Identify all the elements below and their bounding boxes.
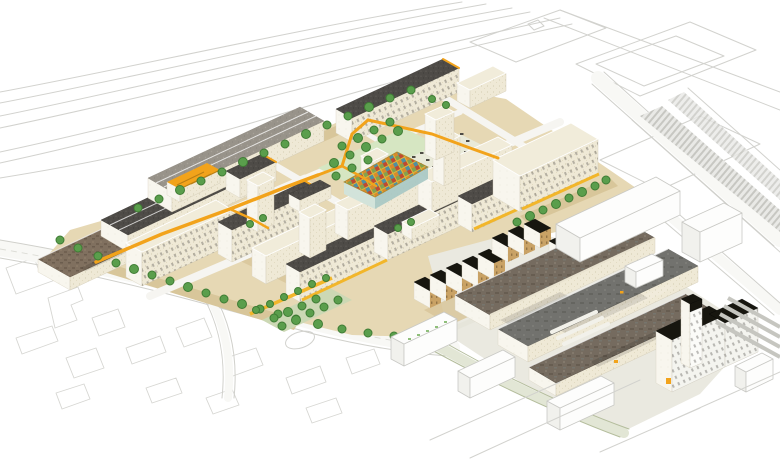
tree (408, 219, 415, 226)
ghost-building (682, 203, 742, 262)
tree (184, 283, 193, 292)
tree (346, 151, 354, 159)
tree (378, 135, 386, 143)
tree (309, 281, 316, 288)
tree (344, 112, 352, 120)
tree (513, 218, 521, 226)
tree (112, 259, 120, 267)
tree (365, 103, 374, 112)
tree (395, 225, 402, 232)
tree (306, 309, 314, 317)
tree (270, 314, 278, 322)
tree (176, 186, 185, 195)
tree (386, 94, 394, 102)
tree (281, 140, 289, 148)
tree (284, 308, 293, 317)
tree (74, 244, 82, 252)
tree (323, 275, 330, 282)
tree (197, 177, 205, 185)
tree (332, 172, 340, 180)
masterplan-illustration (0, 0, 780, 463)
tree (302, 130, 311, 139)
tree (407, 86, 415, 94)
tree (364, 156, 372, 164)
tree (323, 121, 331, 129)
tree (565, 194, 573, 202)
tree (429, 96, 436, 103)
tree (338, 142, 346, 150)
tree (202, 289, 210, 297)
tree (354, 134, 363, 143)
tree (278, 322, 286, 330)
tree (602, 176, 610, 184)
tree (130, 265, 139, 274)
tree (166, 277, 174, 285)
tree (364, 329, 372, 337)
tree (281, 294, 288, 301)
tree (552, 200, 561, 209)
tree (578, 188, 587, 197)
tree (394, 127, 403, 136)
tree (260, 215, 267, 222)
tree (298, 302, 306, 310)
tree (292, 316, 301, 325)
tree (260, 149, 268, 157)
tree (370, 126, 378, 134)
tree (526, 212, 535, 221)
tree (239, 158, 248, 167)
tree (312, 295, 320, 303)
tree (148, 271, 156, 279)
tree (443, 102, 450, 109)
tree (218, 168, 226, 176)
tree (320, 303, 328, 311)
tree (155, 195, 163, 203)
campus-tower (299, 204, 326, 258)
tree (386, 118, 394, 126)
tree (334, 296, 342, 304)
tree (338, 325, 346, 333)
tree (220, 295, 228, 303)
tree (134, 204, 142, 212)
tree (247, 221, 254, 228)
tree (56, 236, 64, 244)
tree (348, 164, 356, 172)
tree (267, 301, 274, 308)
masterplan-canvas (0, 0, 780, 463)
tree (330, 159, 339, 168)
tree (539, 206, 547, 214)
white-tower (681, 294, 702, 368)
tree (362, 143, 371, 152)
tree (591, 182, 599, 190)
tree (238, 300, 247, 309)
tree (94, 252, 102, 260)
tree (314, 320, 323, 329)
tree (295, 288, 302, 295)
tree (253, 307, 260, 314)
